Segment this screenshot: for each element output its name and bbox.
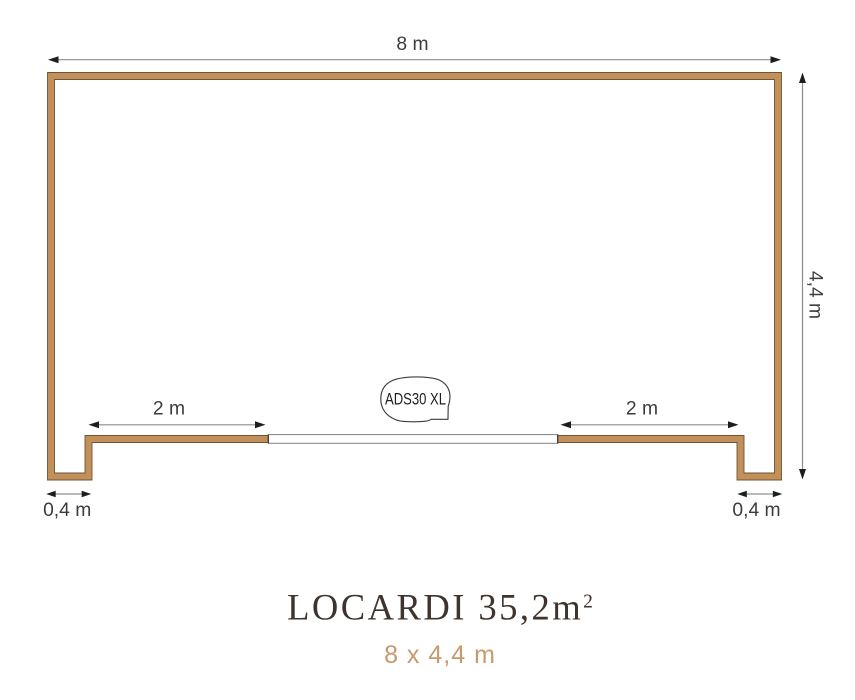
svg-text:ADS30 XL: ADS30 XL: [385, 389, 446, 408]
svg-text:4,4 m: 4,4 m: [805, 271, 826, 319]
svg-text:2 m: 2 m: [626, 398, 658, 419]
svg-text:8 x 4,4 m: 8 x 4,4 m: [384, 641, 496, 669]
svg-text:LOCARDI 35,2m2: LOCARDI 35,2m2: [287, 586, 593, 627]
svg-text:0,4 m: 0,4 m: [732, 500, 780, 521]
svg-text:8 m: 8 m: [396, 34, 428, 55]
svg-text:2 m: 2 m: [153, 398, 185, 419]
svg-text:0,4 m: 0,4 m: [43, 500, 91, 521]
